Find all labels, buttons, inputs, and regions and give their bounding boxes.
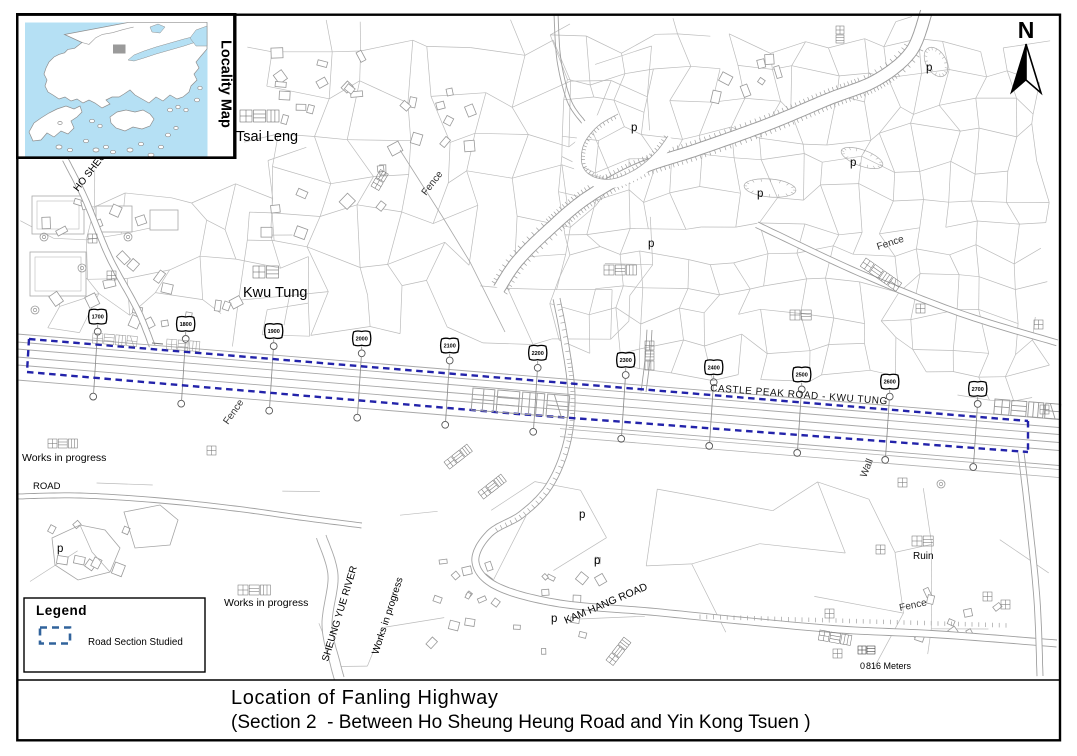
svg-text:p: p xyxy=(850,157,856,169)
svg-text:1800: 1800 xyxy=(180,322,192,328)
svg-text:1700: 1700 xyxy=(92,315,104,321)
svg-text:2700: 2700 xyxy=(972,387,984,393)
svg-text:p: p xyxy=(579,509,585,521)
svg-text:Works in progress: Works in progress xyxy=(22,452,106,464)
svg-text:2600: 2600 xyxy=(884,380,896,386)
svg-text:Road Section Studied: Road Section Studied xyxy=(88,637,183,648)
svg-text:p: p xyxy=(757,188,763,200)
svg-text:1900: 1900 xyxy=(268,329,280,335)
svg-text:p: p xyxy=(648,238,654,250)
svg-text:Works in progress: Works in progress xyxy=(224,597,308,609)
svg-text:Legend: Legend xyxy=(36,603,87,618)
svg-text:2500: 2500 xyxy=(796,373,808,379)
svg-text:Ruin: Ruin xyxy=(913,551,934,562)
svg-text:N: N xyxy=(1018,17,1035,43)
svg-text:2100: 2100 xyxy=(444,344,456,350)
svg-text:p: p xyxy=(594,555,600,567)
svg-text:Location of Fanling Highway: Location of Fanling Highway xyxy=(231,687,498,709)
svg-text:Kwu Tung: Kwu Tung xyxy=(243,285,308,301)
svg-text:(Section 2 - Between Ho Sheun: (Section 2 - Between Ho Sheung Heung Roa… xyxy=(231,712,811,733)
svg-text:2200: 2200 xyxy=(532,351,544,357)
svg-text:816 Meters: 816 Meters xyxy=(866,661,912,671)
svg-text:p: p xyxy=(926,62,932,74)
svg-text:2000: 2000 xyxy=(356,336,368,342)
svg-text:2400: 2400 xyxy=(708,365,720,371)
svg-text:ROAD: ROAD xyxy=(33,481,61,492)
svg-text:Tsai Leng: Tsai Leng xyxy=(236,129,298,145)
svg-text:p: p xyxy=(551,613,557,625)
svg-text:p: p xyxy=(631,122,637,134)
svg-text:0: 0 xyxy=(860,661,865,671)
svg-text:Locality Map: Locality Map xyxy=(218,40,234,128)
svg-text:p: p xyxy=(57,543,63,555)
svg-text:2300: 2300 xyxy=(620,358,632,364)
